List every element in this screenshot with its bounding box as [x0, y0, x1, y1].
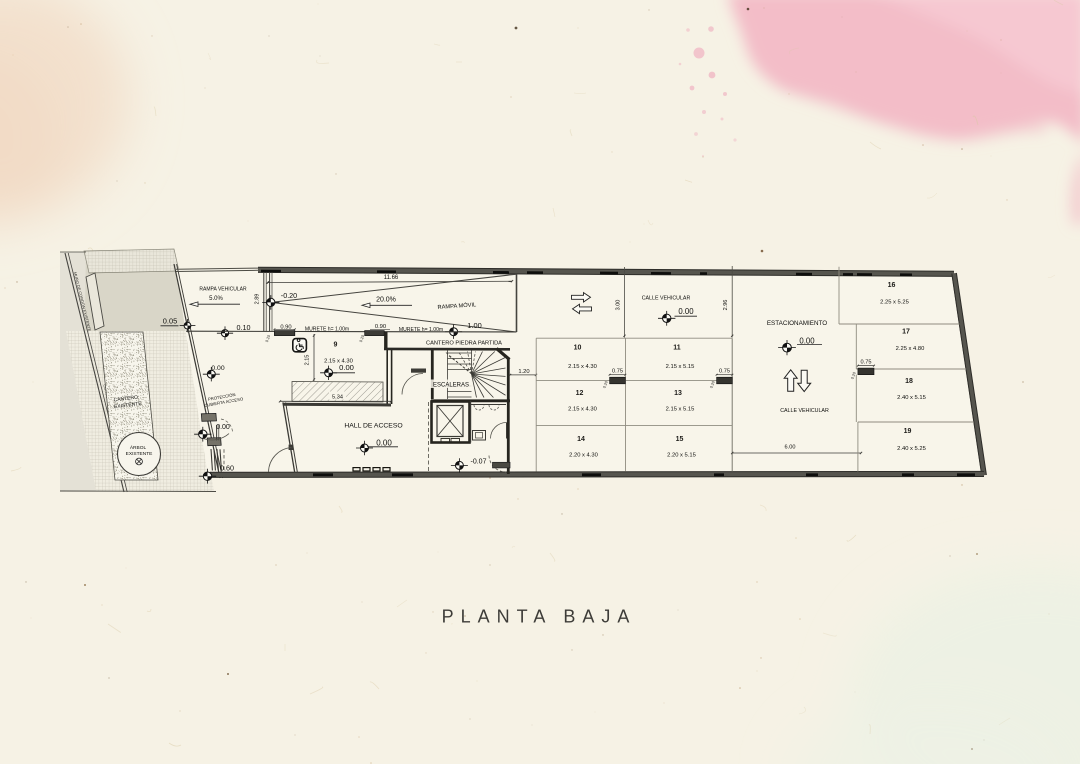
svg-text:17: 17	[902, 328, 910, 335]
svg-text:6.00: 6.00	[785, 444, 796, 450]
svg-text:2.40 x 5.25: 2.40 x 5.25	[897, 446, 926, 452]
svg-text:MURETE h= 1.00m: MURETE h= 1.00m	[305, 327, 349, 333]
svg-text:0.60: 0.60	[220, 464, 234, 473]
svg-text:ÁRBOL: ÁRBOL	[130, 444, 147, 451]
svg-text:15: 15	[676, 436, 684, 443]
svg-text:20.0%: 20.0%	[376, 297, 396, 304]
svg-text:11.66: 11.66	[384, 275, 399, 281]
svg-text:2.20 x 5.15: 2.20 x 5.15	[667, 452, 696, 458]
svg-text:2.40 x 5.15: 2.40 x 5.15	[897, 395, 926, 401]
svg-text:13: 13	[674, 390, 682, 397]
svg-text:2.15 x 4.30: 2.15 x 4.30	[568, 407, 597, 413]
svg-text:CALLE VEHICULAR: CALLE VEHICULAR	[642, 296, 691, 302]
svg-text:2.96: 2.96	[723, 300, 729, 311]
svg-text:ESCALERAS: ESCALERAS	[433, 383, 469, 389]
svg-text:0.00: 0.00	[216, 424, 230, 431]
svg-text:2.15 x 5.15: 2.15 x 5.15	[666, 364, 695, 370]
svg-text:0.75: 0.75	[612, 369, 623, 375]
svg-text:1.20: 1.20	[518, 369, 529, 375]
svg-text:CANTERO PIEDRA PARTIDA: CANTERO PIEDRA PARTIDA	[426, 341, 502, 347]
svg-text:2.25 x 4.80: 2.25 x 4.80	[896, 346, 925, 352]
svg-text:3.00: 3.00	[616, 300, 622, 311]
svg-text:RAMPA VEHICULAR: RAMPA VEHICULAR	[199, 287, 247, 293]
svg-text:2.15: 2.15	[305, 355, 311, 366]
svg-text:2.89: 2.89	[255, 294, 261, 305]
svg-text:0.75: 0.75	[861, 359, 872, 365]
svg-text:-0.20: -0.20	[281, 291, 297, 300]
svg-text:0.00: 0.00	[376, 439, 392, 448]
svg-text:0.00: 0.00	[678, 307, 694, 316]
svg-text:18: 18	[905, 378, 913, 385]
svg-text:2.15 x 5.15: 2.15 x 5.15	[666, 407, 695, 413]
svg-text:2.20 x 4.30: 2.20 x 4.30	[569, 452, 598, 458]
svg-text:0.05: 0.05	[163, 317, 177, 326]
svg-text:PLANTA BAJA: PLANTA BAJA	[442, 607, 637, 627]
svg-text:ESTACIONAMIENTO: ESTACIONAMIENTO	[767, 320, 827, 327]
svg-text:-0.07: -0.07	[471, 459, 487, 466]
svg-text:9: 9	[334, 342, 338, 349]
svg-text:HALL DE ACCESO: HALL DE ACCESO	[344, 422, 402, 429]
svg-text:1.00: 1.00	[467, 321, 481, 330]
svg-text:10: 10	[574, 345, 582, 352]
svg-text:CALLE VEHICULAR: CALLE VEHICULAR	[780, 408, 829, 414]
svg-text:0.75: 0.75	[719, 369, 730, 375]
svg-text:EXISTENTE: EXISTENTE	[126, 451, 153, 457]
svg-text:5.0%: 5.0%	[209, 296, 223, 302]
svg-text:5.34: 5.34	[332, 394, 343, 400]
svg-text:16: 16	[888, 282, 896, 289]
svg-text:12: 12	[576, 390, 584, 397]
svg-text:MURETE h= 1.00m: MURETE h= 1.00m	[399, 327, 443, 333]
svg-text:0.00: 0.00	[339, 363, 354, 372]
svg-text:19: 19	[904, 428, 912, 435]
svg-text:14: 14	[577, 436, 585, 443]
svg-text:11: 11	[673, 345, 681, 352]
svg-text:2.15 x 4.30: 2.15 x 4.30	[568, 364, 597, 370]
svg-text:2.25 x 5.25: 2.25 x 5.25	[880, 300, 909, 306]
